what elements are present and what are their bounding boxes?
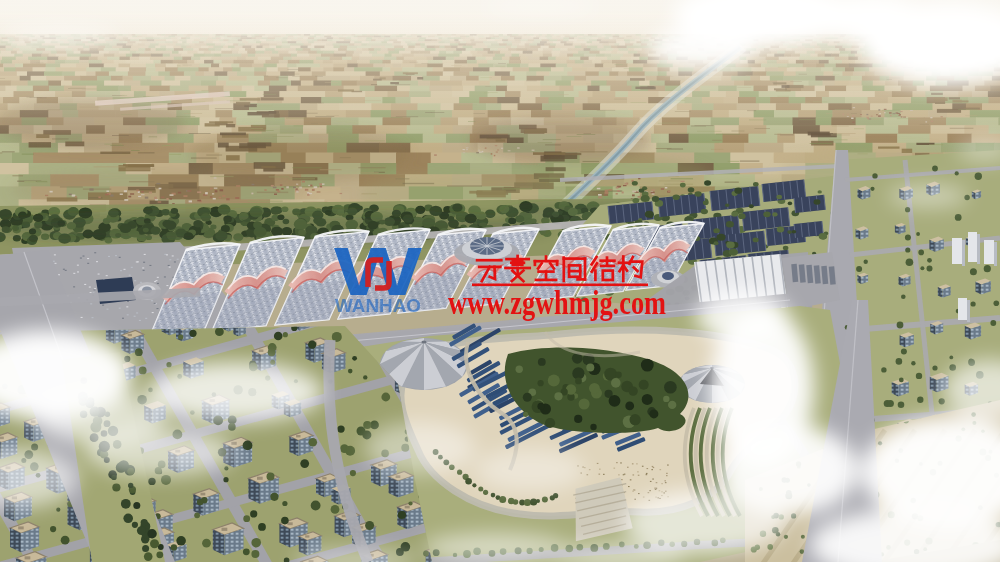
svg-text:WANHAO: WANHAO bbox=[335, 295, 421, 316]
svg-text:www.zgwhmjg.com: www.zgwhmjg.com bbox=[448, 285, 666, 321]
